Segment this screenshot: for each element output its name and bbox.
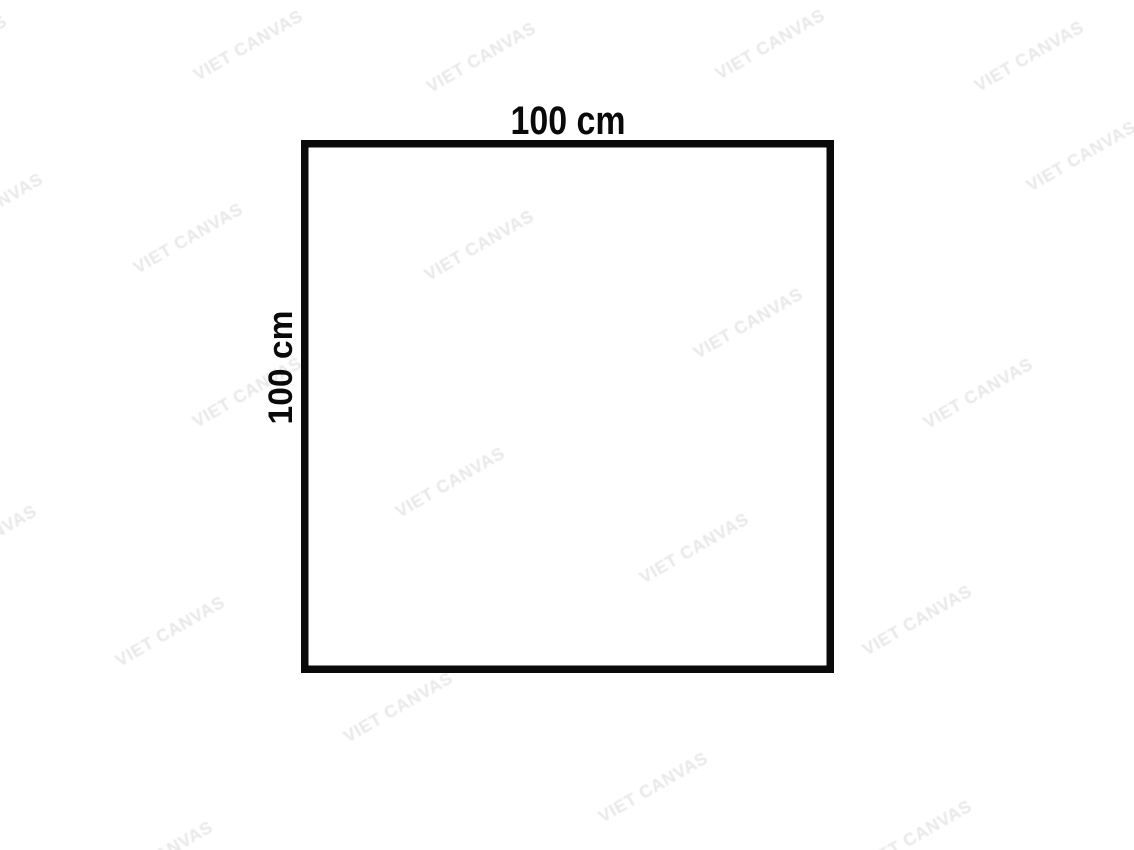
svg-text:VIET CANVAS: VIET CANVAS [190,6,306,85]
svg-text:VIET CANVAS: VIET CANVAS [0,501,40,580]
svg-text:VIET CANVAS: VIET CANVAS [0,169,46,248]
svg-text:VIET CANVAS: VIET CANVAS [112,592,228,671]
svg-text:VIET CANVAS: VIET CANVAS [712,5,828,84]
svg-text:VIET CANVAS: VIET CANVAS [971,17,1087,96]
svg-text:VIET CANVAS: VIET CANVAS [859,796,975,850]
svg-text:VIET CANVAS: VIET CANVAS [423,18,539,97]
svg-text:VIET CANVAS: VIET CANVAS [1023,117,1134,196]
svg-text:VIET CANVAS: VIET CANVAS [636,509,752,588]
svg-text:VIET CANVAS: VIET CANVAS [421,206,537,285]
svg-text:VIET CANVAS: VIET CANVAS [340,668,456,747]
svg-text:VIET CANVAS: VIET CANVAS [859,581,975,660]
svg-text:VIET CANVAS: VIET CANVAS [392,443,508,522]
svg-text:VIET CANVAS: VIET CANVAS [920,354,1036,433]
svg-text:VIET CANVAS: VIET CANVAS [0,11,10,90]
svg-text:100 cm: 100 cm [262,311,300,425]
svg-text:VIET CANVAS: VIET CANVAS [690,284,806,363]
svg-text:VIET CANVAS: VIET CANVAS [595,748,711,827]
svg-text:VIET CANVAS: VIET CANVAS [130,199,246,278]
svg-text:VIET CANVAS: VIET CANVAS [100,817,216,850]
svg-text:100 cm: 100 cm [511,99,626,143]
